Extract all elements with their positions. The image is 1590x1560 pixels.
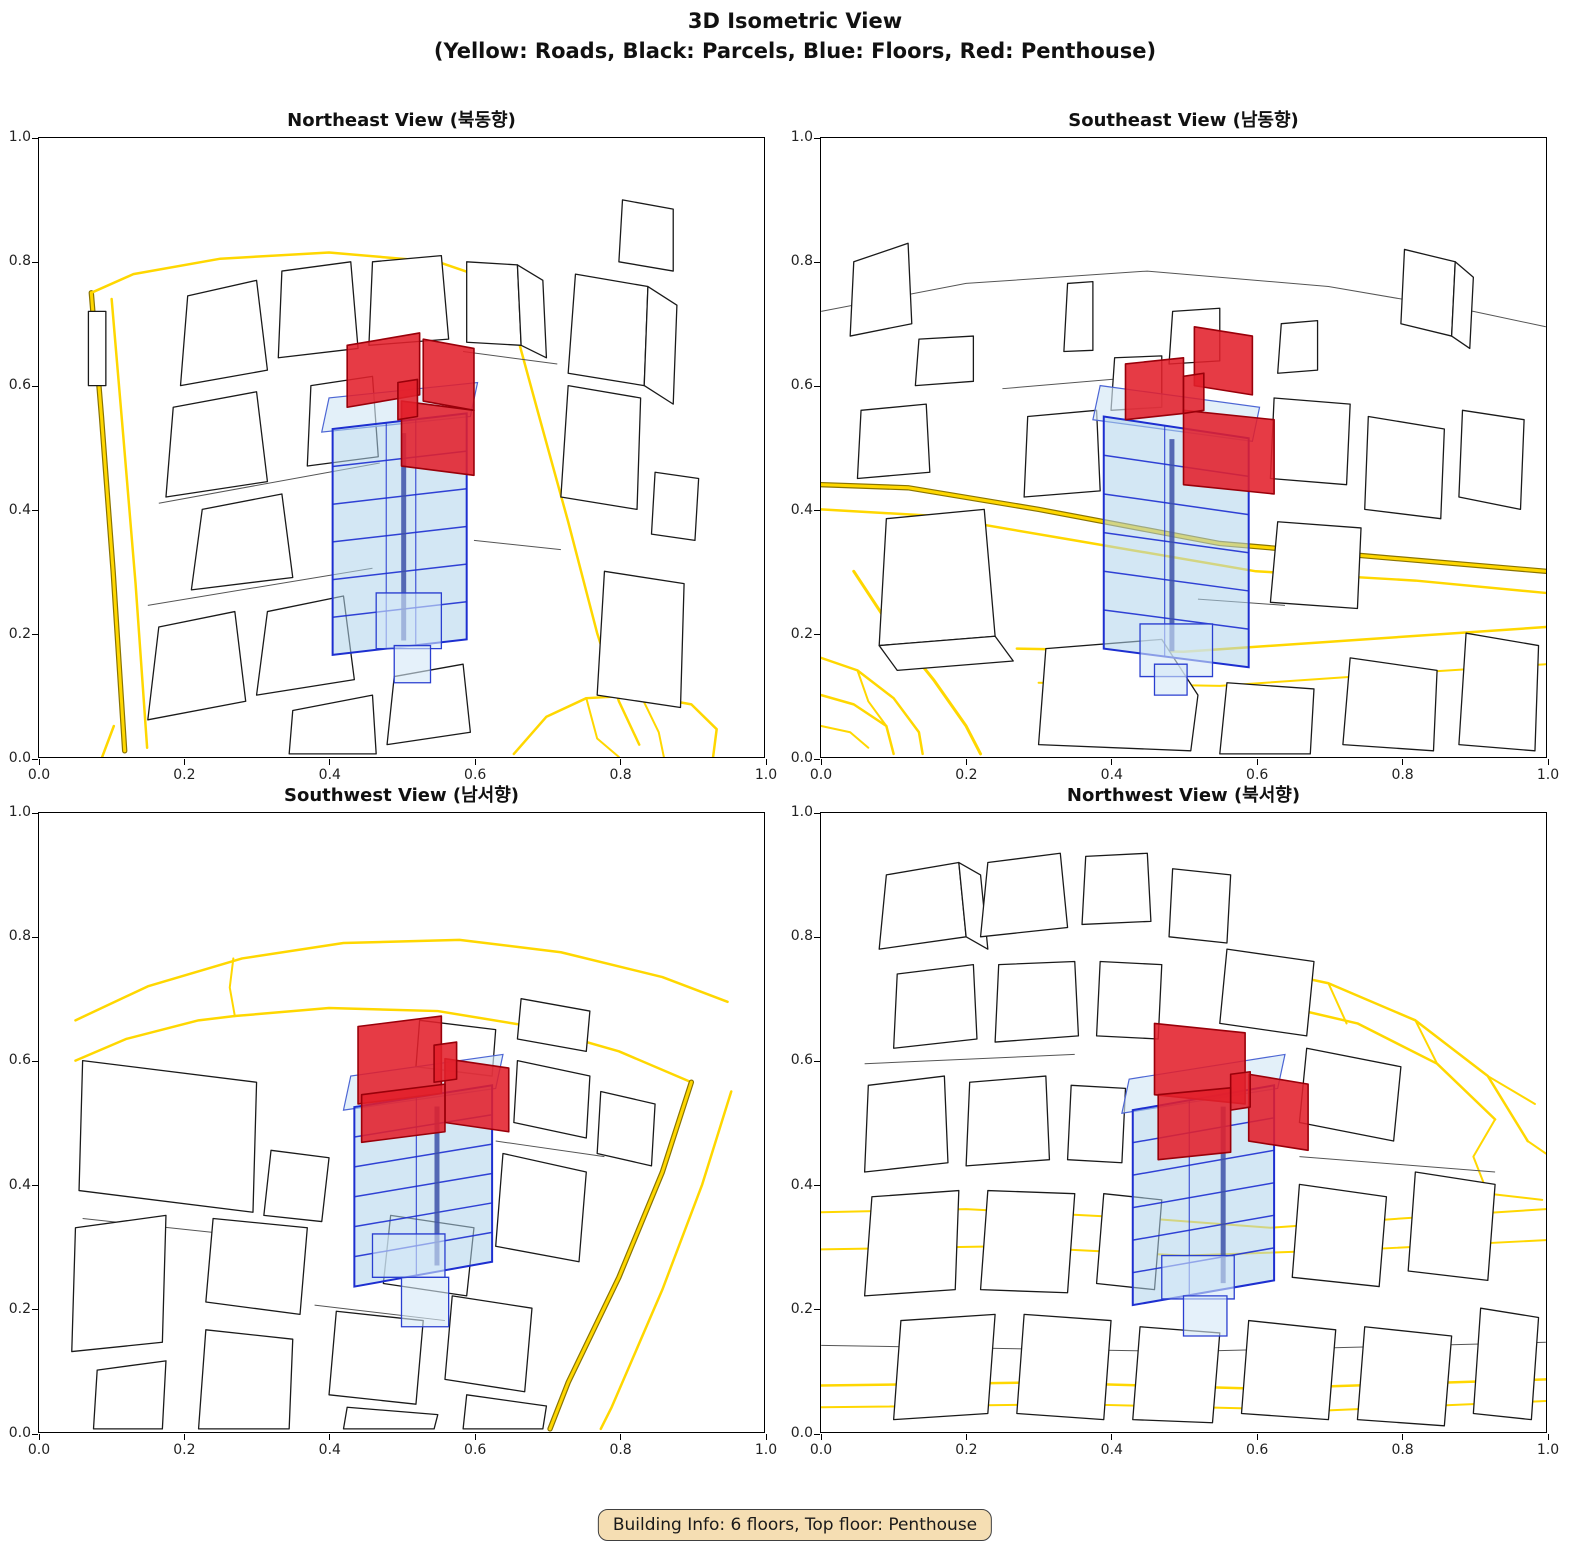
y-tick-mark	[814, 1185, 820, 1186]
subplot-title-southwest: Southwest View (남서향)	[38, 781, 765, 807]
x-tick-mark	[1402, 1434, 1403, 1440]
y-tick-label: 0.6	[0, 1052, 31, 1068]
axes-northeast: 0.00.00.20.20.40.40.60.60.80.81.01.0	[38, 137, 765, 758]
figure-title-line2: (Yellow: Roads, Black: Parcels, Blue: Fl…	[0, 36, 1590, 66]
x-tick-label: 0.8	[1381, 1442, 1425, 1458]
y-tick-label: 0.0	[769, 750, 813, 766]
y-tick-label: 0.2	[0, 626, 31, 642]
y-tick-mark	[814, 813, 820, 814]
y-tick-mark	[32, 759, 38, 760]
subplot-northeast: Northeast View (북동향) 0.00.00.20.20.40.40…	[38, 137, 765, 758]
y-tick-mark	[814, 262, 820, 263]
x-tick-mark	[966, 1434, 967, 1440]
subplot-title-southeast: Southeast View (남동향)	[820, 106, 1547, 132]
x-tick-mark	[620, 1434, 621, 1440]
x-tick-mark	[620, 759, 621, 765]
x-tick-label: 0.4	[308, 1442, 352, 1458]
y-tick-label: 0.0	[0, 750, 31, 766]
subplot-title-northeast: Northeast View (북동향)	[38, 106, 765, 132]
scene-northeast	[39, 138, 764, 757]
y-tick-label: 1.0	[769, 804, 813, 820]
y-tick-mark	[814, 1434, 820, 1435]
subplot-northwest: Northwest View (북서향) 0.00.00.20.20.40.40…	[820, 812, 1547, 1433]
x-tick-label: 0.0	[17, 1442, 61, 1458]
x-tick-label: 0.0	[799, 1442, 843, 1458]
x-tick-mark	[1402, 759, 1403, 765]
y-tick-label: 0.4	[769, 502, 813, 518]
x-tick-mark	[1548, 759, 1549, 765]
x-tick-mark	[1111, 1434, 1112, 1440]
y-tick-mark	[814, 759, 820, 760]
scene-southwest	[39, 813, 764, 1432]
y-tick-mark	[814, 1309, 820, 1310]
y-tick-mark	[32, 262, 38, 263]
x-tick-mark	[475, 1434, 476, 1440]
y-tick-mark	[32, 813, 38, 814]
y-tick-mark	[32, 510, 38, 511]
figure-title-line1: 3D Isometric View	[0, 6, 1590, 36]
x-tick-mark	[1548, 1434, 1549, 1440]
y-tick-mark	[32, 386, 38, 387]
subplot-title-northwest: Northwest View (북서향)	[820, 781, 1547, 807]
y-tick-label: 1.0	[0, 129, 31, 145]
y-tick-mark	[814, 510, 820, 511]
y-tick-label: 0.0	[769, 1425, 813, 1441]
y-tick-label: 0.8	[769, 253, 813, 269]
x-tick-mark	[821, 1434, 822, 1440]
x-tick-label: 0.6	[1235, 1442, 1279, 1458]
y-tick-mark	[814, 386, 820, 387]
x-tick-mark	[1257, 759, 1258, 765]
x-tick-label: 0.2	[162, 1442, 206, 1458]
x-tick-mark	[966, 759, 967, 765]
figure-title: 3D Isometric View (Yellow: Roads, Black:…	[0, 6, 1590, 66]
x-tick-mark	[184, 759, 185, 765]
y-tick-mark	[814, 937, 820, 938]
y-tick-label: 0.8	[0, 928, 31, 944]
y-tick-mark	[32, 1061, 38, 1062]
y-tick-label: 0.2	[769, 626, 813, 642]
x-tick-mark	[475, 759, 476, 765]
y-tick-label: 0.6	[0, 377, 31, 393]
x-tick-label: 1.0	[744, 1442, 788, 1458]
x-tick-label: 0.4	[1090, 1442, 1134, 1458]
y-tick-mark	[32, 1185, 38, 1186]
y-tick-mark	[814, 138, 820, 139]
x-tick-mark	[1257, 1434, 1258, 1440]
y-tick-mark	[32, 634, 38, 635]
y-tick-mark	[32, 138, 38, 139]
y-tick-mark	[32, 1434, 38, 1435]
y-tick-mark	[814, 634, 820, 635]
y-tick-mark	[32, 937, 38, 938]
y-tick-label: 1.0	[769, 129, 813, 145]
subplot-southwest: Southwest View (남서향) 0.00.00.20.20.40.40…	[38, 812, 765, 1433]
x-tick-mark	[329, 1434, 330, 1440]
building-info-caption: Building Info: 6 floors, Top floor: Pent…	[598, 1509, 992, 1541]
x-tick-label: 0.2	[944, 1442, 988, 1458]
scene-northwest	[821, 813, 1546, 1432]
x-tick-mark	[329, 759, 330, 765]
x-tick-label: 0.6	[453, 1442, 497, 1458]
subplot-southeast: Southeast View (남동향) 0.00.00.20.20.40.40…	[820, 137, 1547, 758]
y-tick-label: 0.8	[769, 928, 813, 944]
axes-southwest: 0.00.00.20.20.40.40.60.60.80.81.01.0	[38, 812, 765, 1433]
y-tick-label: 1.0	[0, 804, 31, 820]
x-tick-mark	[39, 1434, 40, 1440]
y-tick-label: 0.6	[769, 1052, 813, 1068]
y-tick-mark	[814, 1061, 820, 1062]
y-tick-label: 0.2	[0, 1301, 31, 1317]
x-tick-mark	[766, 759, 767, 765]
y-tick-label: 0.4	[0, 1177, 31, 1193]
x-tick-mark	[39, 759, 40, 765]
y-tick-mark	[32, 1309, 38, 1310]
x-tick-label: 0.8	[599, 1442, 643, 1458]
axes-southeast: 0.00.00.20.20.40.40.60.60.80.81.01.0	[820, 137, 1547, 758]
figure-canvas: { "figure": { "title_line1": "3D Isometr…	[0, 0, 1590, 1560]
y-tick-label: 0.4	[769, 1177, 813, 1193]
y-tick-label: 0.4	[0, 502, 31, 518]
x-tick-mark	[821, 759, 822, 765]
x-tick-mark	[766, 1434, 767, 1440]
x-tick-mark	[184, 1434, 185, 1440]
y-tick-label: 0.2	[769, 1301, 813, 1317]
scene-southeast	[821, 138, 1546, 757]
x-tick-mark	[1111, 759, 1112, 765]
axes-northwest: 0.00.00.20.20.40.40.60.60.80.81.01.0	[820, 812, 1547, 1433]
y-tick-label: 0.8	[0, 253, 31, 269]
y-tick-label: 0.6	[769, 377, 813, 393]
x-tick-label: 1.0	[1526, 1442, 1570, 1458]
y-tick-label: 0.0	[0, 1425, 31, 1441]
